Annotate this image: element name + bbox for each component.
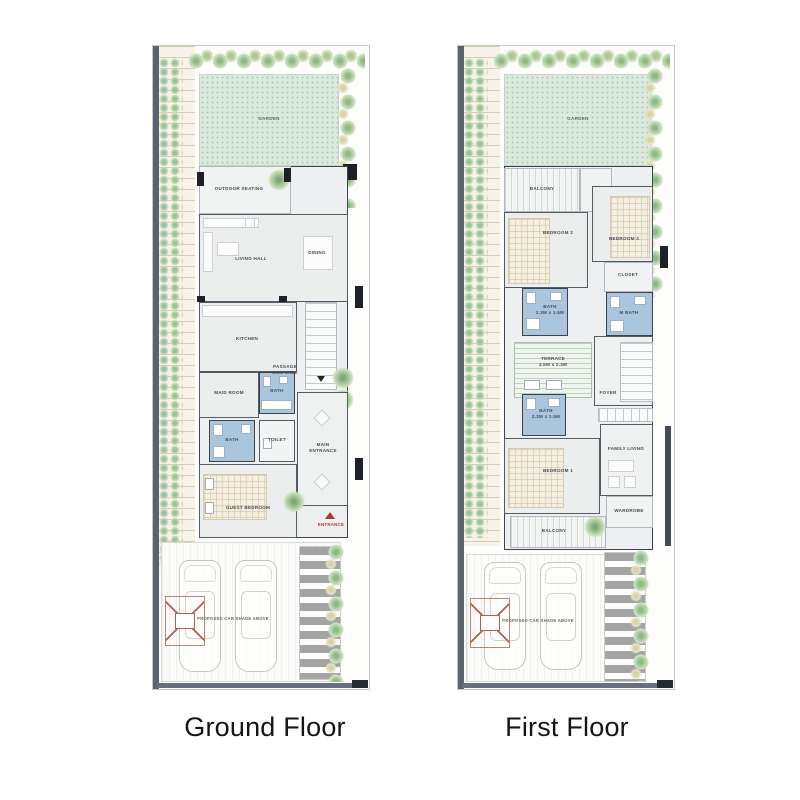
wardrobe-label: WARDROBE xyxy=(614,508,643,514)
stair-landing xyxy=(598,408,653,422)
stair-arrow-icon xyxy=(317,376,325,382)
guest-bedroom-label: GUEST BEDROOM xyxy=(226,505,270,511)
planter-box xyxy=(546,380,562,390)
boundary-wall-right xyxy=(665,426,671,546)
sink-fixture xyxy=(550,292,562,301)
bath-top-label: BATH 2.3M x 1.5M xyxy=(536,304,564,316)
shower-fixture xyxy=(610,320,624,332)
master-bath-label: M BATH xyxy=(619,310,638,316)
shrub-hedge xyxy=(464,58,488,538)
bath-bottom-label: BATH 2.3M x 1.5M xyxy=(532,408,560,420)
sofa xyxy=(203,232,213,272)
car-shade-label: PROPOSED CAR SHADE ABOVE xyxy=(197,616,269,622)
toilet-fixture xyxy=(526,292,536,304)
floor-plans-page: GARDEN OUTDOOR SEATING LIVING HALL DININ… xyxy=(0,0,800,800)
staircase xyxy=(620,342,653,402)
bed xyxy=(508,448,564,508)
bedroom-3-label: BEDROOM 3 xyxy=(609,236,639,242)
ground-floor-caption: Ground Floor xyxy=(184,712,345,743)
utility-box xyxy=(175,613,195,629)
living-hall-label: LIVING HALL xyxy=(235,256,267,262)
boundary-column xyxy=(660,246,668,268)
bed xyxy=(610,196,650,258)
boundary-wall-bottom xyxy=(462,683,670,688)
car-hood xyxy=(240,565,272,582)
first-floor-caption: First Floor xyxy=(505,712,629,743)
car-roof xyxy=(241,591,271,639)
main-entrance-label: MAIN ENTRANCE xyxy=(309,442,337,454)
balcony-bottom-label: BALCONY xyxy=(542,528,566,534)
shower-fixture xyxy=(261,400,292,410)
planter-box xyxy=(524,380,540,390)
dining-label: DINING xyxy=(308,250,326,256)
toilet-fixture xyxy=(610,296,620,308)
boundary-column xyxy=(355,286,363,308)
sink-fixture xyxy=(213,446,225,458)
bedroom-2-label: BEDROOM 2 xyxy=(543,230,573,236)
ground-floor-plan: GARDEN OUTDOOR SEATING LIVING HALL DININ… xyxy=(152,45,370,690)
sink-fixture xyxy=(548,398,560,407)
sofa xyxy=(608,460,634,472)
maid-room-label: MAID ROOM xyxy=(214,390,244,396)
tree-column-right-bottom xyxy=(325,544,355,682)
toilet-fixture xyxy=(213,424,223,436)
wall-column xyxy=(284,168,291,182)
planter-icon xyxy=(283,490,305,516)
boundary-wall-left xyxy=(153,46,159,689)
boundary-wall-left xyxy=(458,46,464,689)
kitchen-label: KITCHEN xyxy=(236,336,258,342)
boundary-column xyxy=(355,458,363,480)
bedroom-1-label: BEDROOM 1 xyxy=(543,468,573,474)
planter-icon xyxy=(584,516,606,540)
bed xyxy=(508,218,550,284)
shower-fixture xyxy=(526,318,540,330)
terrace-label: TERRACE 3.5M x 2.3M xyxy=(539,356,567,368)
car-outline xyxy=(540,562,582,670)
planter-icon xyxy=(331,368,355,390)
coffee-table xyxy=(217,242,239,256)
shower-fixture xyxy=(241,424,251,434)
bath-upper-label: BATH xyxy=(270,388,283,394)
closet-label: CLOSET xyxy=(618,272,638,278)
shrub-hedge xyxy=(159,58,183,563)
entrance-arrow-icon xyxy=(325,512,335,519)
balcony-top-label: BALCONY xyxy=(530,186,554,192)
armchair xyxy=(608,476,620,488)
armchair xyxy=(245,218,255,228)
family-living-label: FAMILY LIVING xyxy=(608,446,644,452)
car-roof xyxy=(546,593,576,641)
garden-label: GARDEN xyxy=(567,116,588,122)
kitchen-counter xyxy=(202,305,293,317)
car-shade-label: PROPOSED CAR SHADE ABOVE xyxy=(502,618,574,624)
bath-lower-label: BATH xyxy=(225,437,238,443)
car-hood xyxy=(184,565,216,582)
utility-box xyxy=(480,615,500,631)
sink-fixture xyxy=(634,296,646,305)
tree-column-right-bottom xyxy=(630,550,660,682)
car-hood xyxy=(545,567,577,584)
passage-label: PASSAGE 1.2M WIDE xyxy=(272,364,298,376)
pillow xyxy=(205,478,214,490)
pillow xyxy=(205,502,214,514)
foyer-label: FOYER xyxy=(599,390,616,396)
sink-fixture xyxy=(279,376,288,384)
garden-label: GARDEN xyxy=(258,116,279,122)
boundary-corner xyxy=(352,680,368,688)
boundary-wall-bottom xyxy=(157,683,365,688)
first-floor-plan: GARDEN BALCONY BEDROOM 2 BEDROOM 3 CLOSE… xyxy=(457,45,675,690)
boundary-corner xyxy=(657,680,673,688)
car-hood xyxy=(489,567,521,584)
toilet-fixture xyxy=(263,376,271,387)
wall-column xyxy=(197,172,204,186)
armchair xyxy=(624,476,636,488)
entrance-label: ENTRANCE xyxy=(318,522,344,528)
outdoor-seating-label: OUTDOOR SEATING xyxy=(215,186,264,192)
toilet-label: TOILET xyxy=(268,437,286,443)
